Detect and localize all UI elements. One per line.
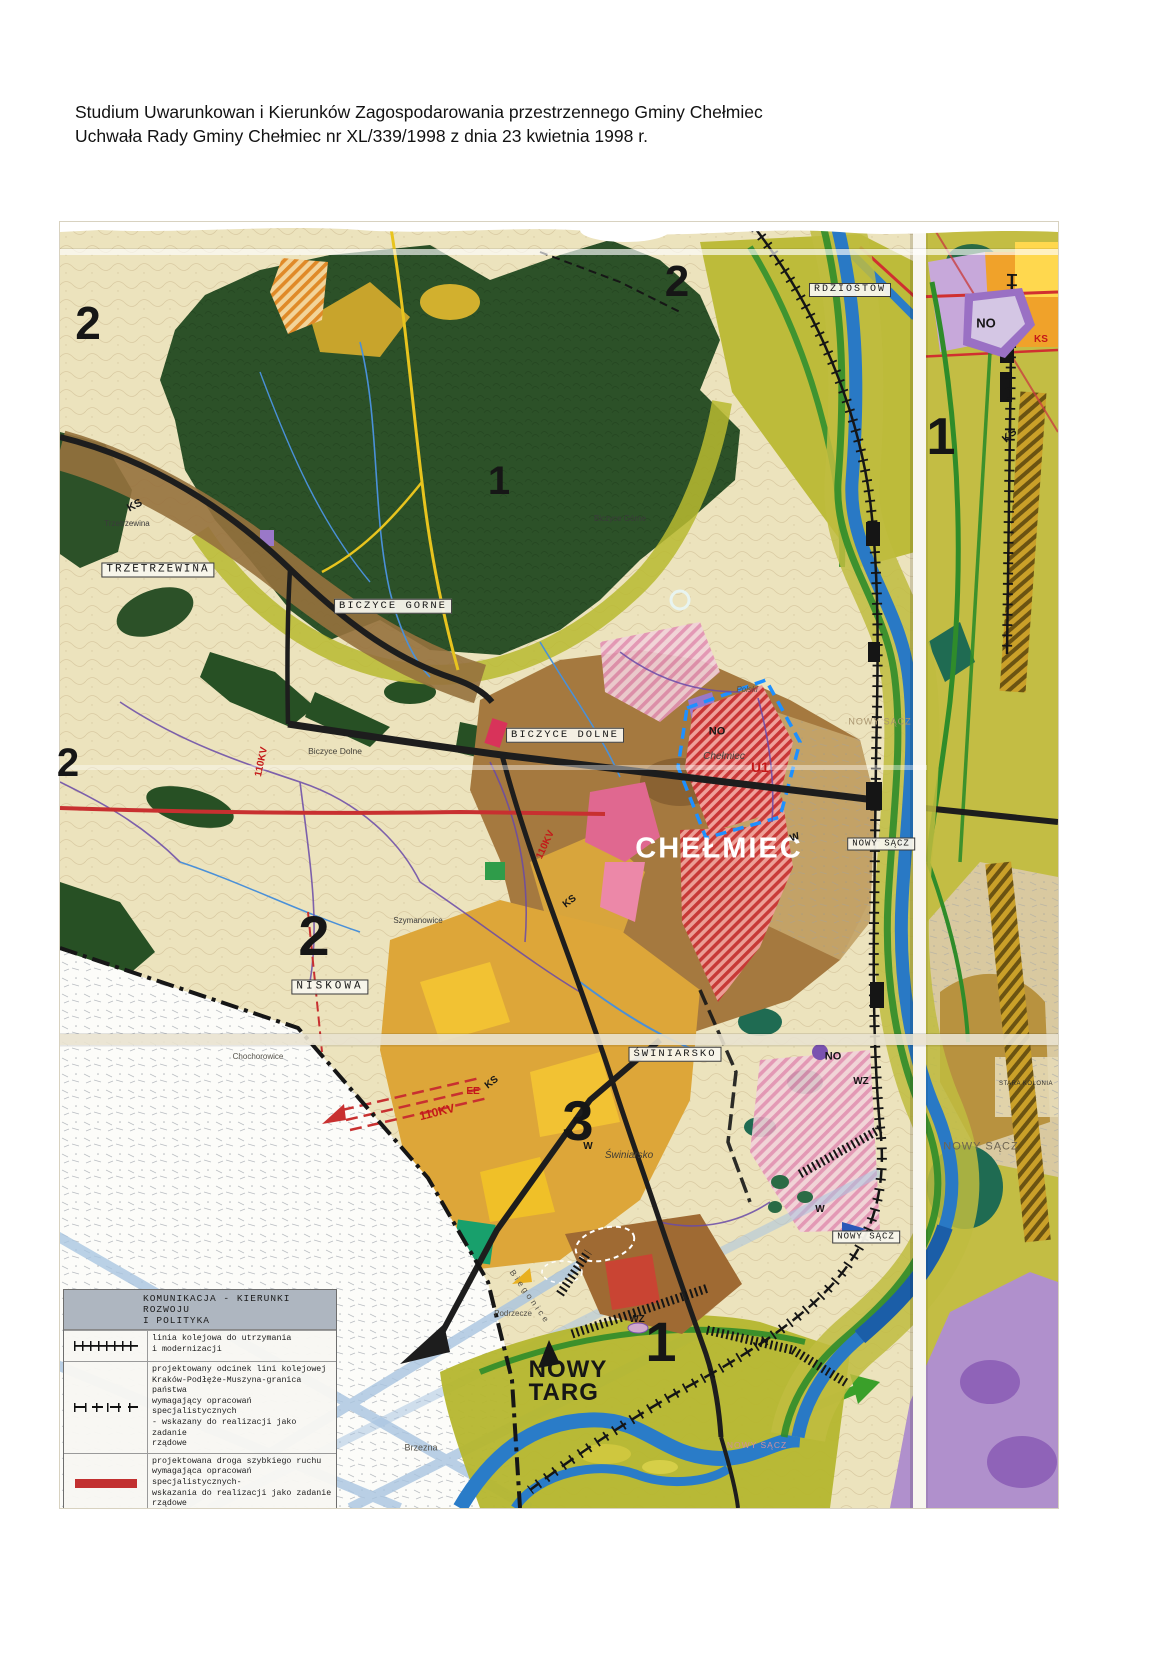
legend-title: KOMUNIKACJA - KIERUNKI ROZWOJU I POLITYK…: [64, 1290, 336, 1330]
wz-symbol: [628, 1323, 648, 1333]
legend-row-railway-projected: projektowany odcinek lini kolejowej Krak…: [64, 1361, 336, 1453]
document-title-line2: Uchwała Rady Gminy Chełmiec nr XL/339/19…: [75, 124, 1095, 148]
legend-komunikacja: KOMUNIKACJA - KIERUNKI ROZWOJU I POLITYK…: [63, 1289, 337, 1508]
legend-swatch-railway-projected: [64, 1362, 148, 1453]
planning-map[interactable]: KOMUNIKACJA - KIERUNKI ROZWOJU I POLITYK…: [60, 222, 1058, 1508]
legend-text: projektowany odcinek lini kolejowej Krak…: [148, 1362, 336, 1453]
legend-title-line2: I POLITYKA: [143, 1315, 332, 1326]
legend-row-railway-existing: linia kolejowa do utrzymania i moderniza…: [64, 1330, 336, 1361]
document-title: Studium Uwarunkowan i Kierunków Zagospod…: [75, 100, 1095, 148]
page: Studium Uwarunkowan i Kierunków Zagospod…: [0, 0, 1169, 1653]
legend-swatch-railway-existing: [64, 1331, 148, 1361]
expressway-symbol: [75, 1479, 137, 1488]
railway-projected-symbol: [74, 1401, 138, 1413]
legend-swatch-expressway: [64, 1454, 148, 1508]
legend-title-line1: KOMUNIKACJA - KIERUNKI ROZWOJU: [143, 1293, 332, 1315]
legend-text: projektowana droga szybkiego ruchu wymag…: [148, 1454, 336, 1508]
railway-line-symbol: [74, 1340, 138, 1352]
document-title-line1: Studium Uwarunkowan i Kierunków Zagospod…: [75, 100, 1095, 124]
legend-row-expressway: projektowana droga szybkiego ruchu wymag…: [64, 1453, 336, 1508]
legend-text: linia kolejowa do utrzymania i moderniza…: [148, 1331, 336, 1361]
